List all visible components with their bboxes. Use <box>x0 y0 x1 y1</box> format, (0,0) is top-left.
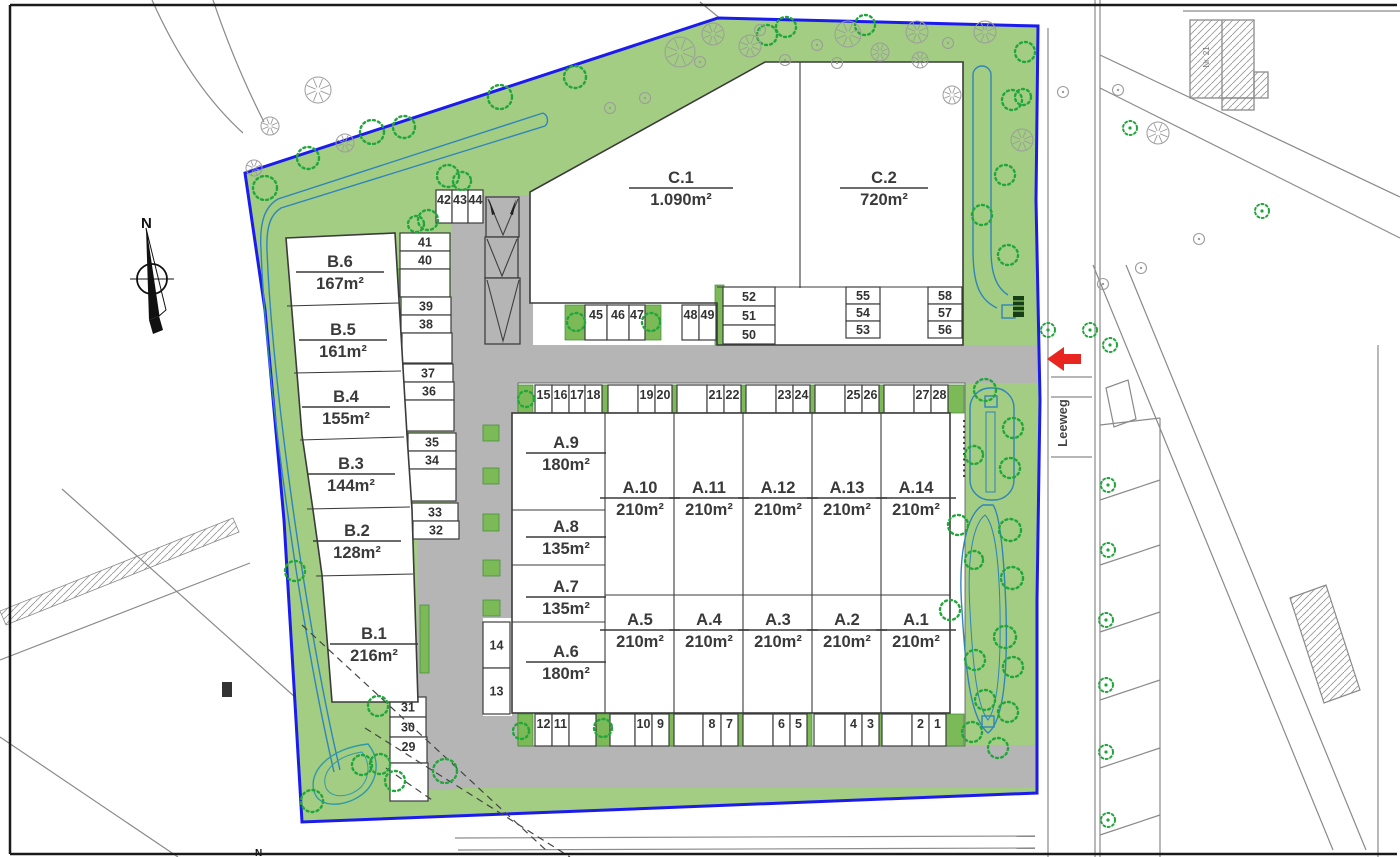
unit-area: 128m² <box>333 544 381 562</box>
parking-stall-blank <box>677 385 707 413</box>
unit-name: B.1 <box>361 625 387 643</box>
tree-center-dot <box>609 107 611 109</box>
parking-stall-number: 45 <box>589 308 603 322</box>
unit-name: A.3 <box>765 611 791 629</box>
unit-area: 210m² <box>616 633 664 651</box>
green-strip <box>810 385 815 413</box>
tree-center-dot <box>816 44 818 46</box>
parking-stall-number: 27 <box>916 388 930 402</box>
entrance-arrow <box>1047 347 1081 371</box>
unit-name: A.11 <box>692 479 726 497</box>
parking-stall-number: 41 <box>418 236 432 250</box>
parking-stall-number: 58 <box>938 289 952 303</box>
stall-divider <box>1100 748 1160 768</box>
tree-center-dot <box>836 62 838 64</box>
parking-stall-number: 11 <box>554 717 567 731</box>
green-strip <box>518 385 533 413</box>
tree-gray-icon <box>1147 122 1169 144</box>
green-strip <box>738 714 743 746</box>
parking-stall-blank <box>608 385 638 413</box>
parking-stall-blank <box>404 400 454 431</box>
parking-stall-number: 10 <box>637 717 651 731</box>
tree-center-dot <box>947 42 949 44</box>
green-strip <box>420 605 429 673</box>
green-strip <box>741 385 746 413</box>
parking-stall-blank <box>610 714 635 746</box>
parking-stall-number: 7 <box>726 717 733 731</box>
ramp-structure <box>485 197 520 344</box>
unit-name: A.9 <box>553 434 579 452</box>
unit-area: 135m² <box>542 540 590 558</box>
unit-name: A.5 <box>627 611 653 629</box>
unit-area: 210m² <box>754 633 802 651</box>
parking-stall-number: 54 <box>856 306 870 320</box>
unit-area: 180m² <box>542 665 590 683</box>
tree-center-dot <box>699 61 701 63</box>
parking-stall-number: 4 <box>850 717 857 731</box>
tree-center-dot <box>1102 283 1104 285</box>
parking-stall-number: 1 <box>934 717 941 731</box>
unit-name: C.2 <box>871 169 897 187</box>
unit-area: 720m² <box>860 191 908 209</box>
parking-stall-blank <box>746 385 776 413</box>
unit-name: A.2 <box>834 611 860 629</box>
unit-name: A.14 <box>899 479 935 497</box>
unit-name: B.2 <box>344 522 370 540</box>
parking-stall-number: 56 <box>938 323 952 337</box>
unit-area: 1.090m² <box>650 191 712 209</box>
tree-center-dot <box>1106 548 1109 551</box>
parking-stall-number: 50 <box>742 328 756 342</box>
parking-stall-blank <box>814 714 845 746</box>
unit-name: A.10 <box>623 479 658 497</box>
parking-stall-number: 28 <box>933 388 947 402</box>
parking-stall-number: 8 <box>709 717 716 731</box>
green-strip <box>483 514 499 531</box>
tree-center-dot <box>1062 91 1064 93</box>
parking-stall-number: 25 <box>847 388 861 402</box>
parking-stall-number: 46 <box>611 308 625 322</box>
tree-center-dot <box>1106 818 1109 821</box>
parking-stall-blank <box>815 385 845 413</box>
unit-name: A.8 <box>553 518 579 536</box>
tree-center-dot <box>784 59 786 61</box>
stall-divider <box>1100 815 1160 835</box>
unit-area: 161m² <box>319 343 367 361</box>
parking-stall-blank <box>743 714 773 746</box>
road-curve-topleft-1 <box>152 0 243 133</box>
tree-center-dot <box>1104 618 1107 621</box>
stall-divider <box>1100 612 1160 632</box>
parking-stall-number: 22 <box>726 388 740 402</box>
parking-stall-number: 36 <box>422 385 436 399</box>
parking-stall-blank <box>674 714 703 746</box>
unit-area: 180m² <box>542 456 590 474</box>
parking-stall-number: 51 <box>742 309 756 323</box>
unit-area: 210m² <box>616 501 664 519</box>
stall-divider <box>1100 680 1160 700</box>
parking-stall-blank <box>402 333 452 363</box>
unit-area: 167m² <box>316 275 364 293</box>
green-strip <box>483 560 500 576</box>
tree-center-dot <box>1140 267 1142 269</box>
road-line <box>0 737 178 857</box>
parking-stall-number: 19 <box>640 388 654 402</box>
tree-center-dot <box>1106 483 1109 486</box>
parking-stall-number: 57 <box>938 306 952 320</box>
parking-stall-number: 43 <box>453 193 467 207</box>
stall-divider <box>1100 545 1160 565</box>
tree-center-dot <box>1198 238 1200 240</box>
green-strip <box>669 714 674 746</box>
tree-gray-icon <box>261 117 279 135</box>
green-strip <box>948 385 964 413</box>
hatched-strip <box>0 518 239 625</box>
hatched-building <box>1290 585 1360 703</box>
green-strip <box>645 305 661 340</box>
tilted-structure <box>1106 380 1136 427</box>
parking-stall-number: 5 <box>795 717 802 731</box>
parking-stall-blank <box>569 714 596 746</box>
tree-center-dot <box>1104 683 1107 686</box>
parking-stall-number: 39 <box>419 300 433 314</box>
unit-area: 210m² <box>823 633 871 651</box>
parking-stall-number: 34 <box>425 454 439 468</box>
unit-area: 155m² <box>322 410 370 428</box>
tree-center-dot <box>1117 89 1119 91</box>
neighbor-building-annex <box>1254 72 1268 98</box>
tree-center-dot <box>759 29 761 31</box>
unit-name: A.6 <box>553 643 579 661</box>
parking-stall-blank <box>390 763 428 801</box>
green-strip <box>518 714 533 746</box>
unit-name: A.7 <box>553 578 579 596</box>
parking-stall-number: 44 <box>469 193 483 207</box>
parking-stall-number: 37 <box>421 367 435 381</box>
parking-stall-number: 2 <box>917 717 924 731</box>
diagonal-road <box>1093 265 1333 850</box>
parking-stall-number: 26 <box>864 388 878 402</box>
unit-name: B.3 <box>338 455 364 473</box>
green-strip <box>672 385 677 413</box>
green-strip <box>807 714 812 746</box>
parking-stall-blank <box>884 385 914 413</box>
unit-name: A.12 <box>761 479 796 497</box>
parking-stall-blank <box>882 714 912 746</box>
parking-stall-number: 55 <box>856 289 870 303</box>
parking-stall-number: 3 <box>867 717 874 731</box>
unit-area: 144m² <box>327 477 375 495</box>
road-bottom <box>420 745 1037 788</box>
parking-stall-blank <box>408 469 456 501</box>
north-compass: N <box>130 215 174 334</box>
parking-stall-number: 24 <box>795 388 809 402</box>
neighbor-label: Nr. 21 <box>1202 46 1211 68</box>
unit-area: 210m² <box>823 501 871 519</box>
unit-name: A.4 <box>696 611 723 629</box>
unit-area: 135m² <box>542 600 590 618</box>
green-strip <box>879 385 884 413</box>
pavement-edge <box>455 836 1035 838</box>
green-strip <box>602 385 608 413</box>
parking-stall-number: 23 <box>778 388 792 402</box>
parking-stall-number: 35 <box>425 436 439 450</box>
parking-stall-number: 49 <box>701 308 715 322</box>
street-name-label: Leeweg <box>1055 399 1070 447</box>
parking-stall-number: 52 <box>742 290 756 304</box>
parking-stall-number: 53 <box>856 323 870 337</box>
unit-area: 210m² <box>892 633 940 651</box>
culvert-mark <box>222 682 232 697</box>
road-middle <box>452 345 1037 383</box>
tree-center-dot <box>1046 328 1049 331</box>
parking-stall-number: 17 <box>570 388 584 402</box>
parking-stall-number: 6 <box>778 717 785 731</box>
unit-name: B.4 <box>333 388 360 406</box>
green-strip <box>483 600 500 616</box>
tree-center-dot <box>1108 343 1111 346</box>
diagonal-road <box>1126 265 1366 850</box>
parking-stall-number: 21 <box>709 388 723 402</box>
parking-stall-number: 15 <box>537 388 551 402</box>
corner-north-label: N <box>255 848 262 857</box>
neighbor-building-tab <box>1222 98 1254 110</box>
parking-stall-number: 42 <box>437 193 451 207</box>
unit-area: 210m² <box>685 633 733 651</box>
tree-center-dot <box>1260 209 1263 212</box>
tree-center-dot <box>644 97 646 99</box>
parking-stall-number: 13 <box>490 685 504 699</box>
unit-name: C.1 <box>668 169 694 187</box>
parking-stall-blank <box>400 269 450 297</box>
unit-name: B.6 <box>327 253 353 271</box>
parking-stall-number: 38 <box>419 318 433 332</box>
tree-center-dot <box>1088 328 1091 331</box>
parking-stall-number: 9 <box>657 717 664 731</box>
green-strip <box>483 468 499 484</box>
parking-stall-number: 16 <box>554 388 568 402</box>
parking-stall-number: 12 <box>537 717 551 731</box>
unit-area: 216m² <box>350 647 398 665</box>
parking-stall-number: 32 <box>429 524 443 538</box>
unit-name: A.1 <box>903 611 929 629</box>
parking-stall-number: 40 <box>418 254 432 268</box>
road-curve-topleft-2 <box>213 0 264 122</box>
parking-stall-number: 18 <box>587 388 601 402</box>
site-plan-svg: Nr. 21 424344414 <box>0 0 1400 857</box>
parking-stall-number: 48 <box>684 308 698 322</box>
parking-stall-number: 14 <box>490 639 504 653</box>
unit-name: B.5 <box>330 321 356 339</box>
tree-center-dot <box>1128 126 1131 129</box>
road-line <box>62 489 305 706</box>
stall-divider <box>1100 480 1160 500</box>
green-strip <box>483 425 499 441</box>
unit-area: 210m² <box>754 501 802 519</box>
unit-area: 210m² <box>892 501 940 519</box>
unit-area: 210m² <box>685 501 733 519</box>
parking-stall-number: 33 <box>428 506 442 520</box>
tree-center-dot <box>1104 750 1107 753</box>
unit-name: A.13 <box>830 479 865 497</box>
parking-stall-number: 29 <box>402 740 416 754</box>
parking-stall-number: 20 <box>657 388 671 402</box>
tree-gray-icon <box>305 77 331 103</box>
